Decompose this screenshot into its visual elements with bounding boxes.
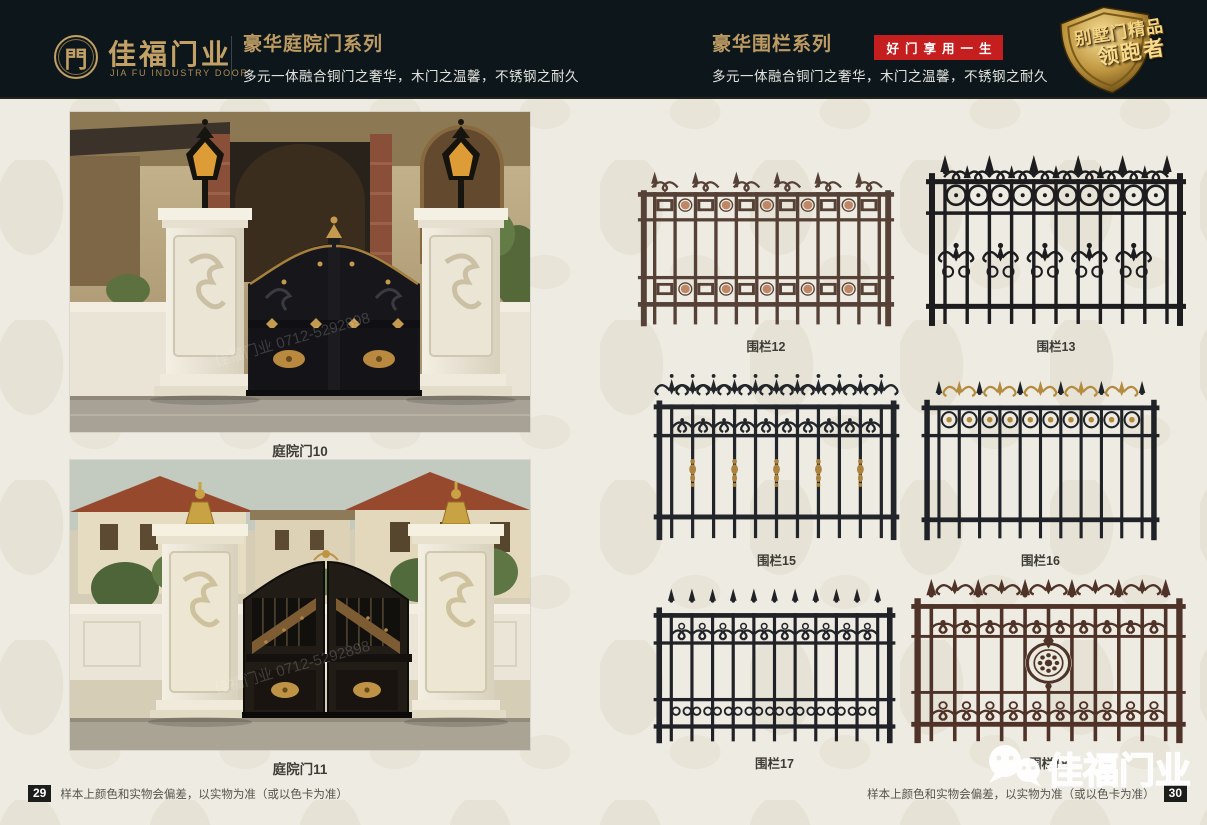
footer-brand-text: 佳福门业 — [1047, 750, 1191, 791]
fence-item-18: 围栏18 — [906, 577, 1191, 747]
quality-slogan-badge: 好门享用一生 — [874, 35, 1003, 60]
fence-image-16 — [917, 377, 1164, 544]
door-series-subtitle: 多元一体融合铜门之奢华，木门之温馨，不锈钢之耐久 — [243, 65, 579, 85]
shield-badge: 别墅门精品 领跑者 — [1046, 3, 1206, 96]
brand-door-icon: 門 — [54, 35, 98, 79]
disclaimer-left: 样本上颜色和实物会偏差，以实物为准（或以色卡为准） — [60, 786, 348, 802]
gate-photo-11-image: 佳福门业 0712-5292898 — [70, 460, 530, 750]
stone-pillar-right — [410, 208, 512, 396]
fence-item-15: 围栏15 — [649, 371, 904, 544]
fence-caption-17: 围栏17 — [649, 753, 900, 772]
fence-image-17 — [649, 581, 900, 747]
gate-photo-10: 佳福门业 0712-5292898 庭院门10 — [70, 112, 530, 432]
gate-photo-11-caption: 庭院门11 — [70, 758, 530, 778]
door-series-heading: 豪华庭院门系列 多元一体融合铜门之奢华，木门之温馨，不锈钢之耐久 — [243, 29, 579, 85]
header-divider — [231, 36, 232, 80]
stone-pillar-left — [154, 208, 256, 396]
fence-item-12: 围栏12 — [633, 166, 899, 330]
door-series-title: 豪华庭院门系列 — [243, 29, 383, 56]
wechat-icon — [989, 745, 1041, 787]
fence-series-heading: 豪华围栏系列 好门享用一生 多元一体融合铜门之奢华，木门之温馨，不锈钢之耐久 — [712, 29, 1048, 85]
brand-name-en: JIA FU INDUSTRY DOOR — [110, 68, 249, 78]
header: 門 佳福门业 JIA FU INDUSTRY DOOR 豪华庭院门系列 多元一体… — [0, 0, 1207, 99]
gate-photo-10-caption: 庭院门10 — [70, 440, 530, 460]
fence-image-13 — [921, 153, 1191, 330]
gate-photo-11: 佳福门业 0712-5292898 庭院门11 — [70, 460, 530, 750]
page-number-left: 29 — [28, 785, 51, 802]
fence-series-subtitle: 多元一体融合铜门之奢华，木门之温馨，不锈钢之耐久 — [712, 65, 1048, 85]
fence-item-13: 围栏13 — [921, 153, 1191, 330]
gate-photo-10-image: 佳福门业 0712-5292898 — [70, 112, 530, 432]
footer-brand-logo: 佳福门业 — [981, 735, 1207, 799]
brand-name: 佳福门业 — [108, 33, 232, 73]
fence-caption-15: 围栏15 — [649, 550, 904, 569]
catalog-page: 門 佳福门业 JIA FU INDUSTRY DOOR 豪华庭院门系列 多元一体… — [0, 0, 1207, 825]
footer-left: 29 样本上颜色和实物会偏差，以实物为准（或以色卡为准） — [28, 785, 348, 802]
fence-caption-12: 围栏12 — [633, 336, 899, 355]
fence-image-15 — [649, 371, 904, 544]
fence-item-16: 围栏16 — [917, 377, 1164, 544]
fence-image-18 — [906, 577, 1191, 747]
fence-item-17: 围栏17 — [649, 581, 900, 747]
fence-image-12 — [633, 166, 899, 330]
fence-caption-13: 围栏13 — [921, 336, 1191, 355]
fence-caption-16: 围栏16 — [917, 550, 1164, 569]
fence-series-title: 豪华围栏系列 — [712, 29, 832, 56]
